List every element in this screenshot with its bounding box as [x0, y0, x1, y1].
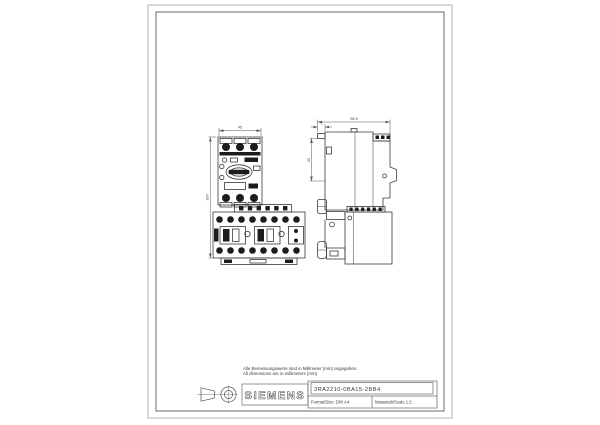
- page-outline: [148, 5, 452, 418]
- siemens-logo: SIEMENS: [245, 390, 306, 402]
- format-label: Format/Size: DIN A4: [311, 400, 350, 405]
- dim-label-side-upper: 35: [306, 158, 311, 162]
- dim-label-front-height: 160: [205, 193, 210, 200]
- dimension-drawing: 45 160: [0, 0, 600, 425]
- dim-label-side-tab: 7: [320, 121, 322, 126]
- drawing-sheet: 45 160: [0, 0, 600, 425]
- dim-label-side-depth: 96.5: [350, 116, 358, 121]
- note-line-english: All dimensions are in millimeters (mm): [243, 371, 318, 376]
- scale-label: Massstab/Scale 1:2: [375, 400, 412, 405]
- part-number: 3RA2210-0BA15-2BB4: [314, 387, 381, 393]
- dim-label-front-width: 45: [238, 125, 242, 130]
